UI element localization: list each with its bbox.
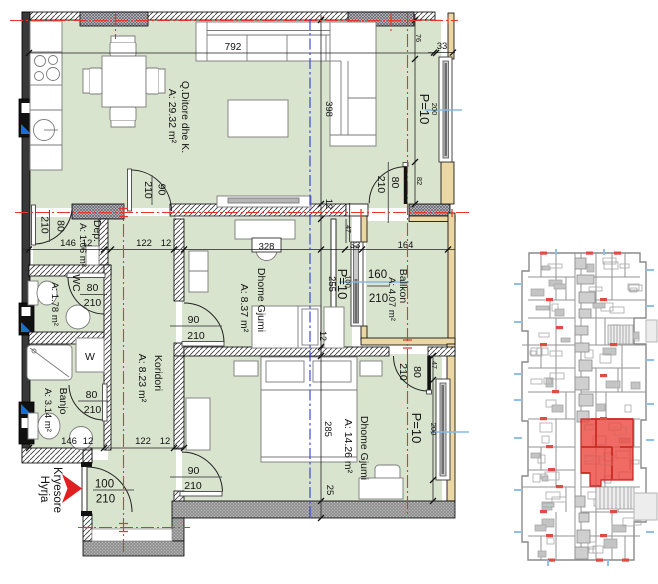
svg-text:A: 4.07 m²: A: 4.07 m² bbox=[386, 277, 397, 321]
svg-text:76: 76 bbox=[414, 34, 423, 42]
svg-text:80: 80 bbox=[411, 366, 423, 378]
svg-text:210: 210 bbox=[84, 297, 102, 309]
svg-text:A: 29.32 m²: A: 29.32 m² bbox=[166, 89, 178, 144]
svg-text:33: 33 bbox=[350, 240, 361, 251]
svg-text:90: 90 bbox=[156, 184, 168, 196]
svg-text:Q.Ditore dhe K.: Q.Ditore dhe K. bbox=[179, 81, 191, 153]
svg-text:146: 146 bbox=[61, 436, 77, 447]
svg-text:210: 210 bbox=[142, 181, 154, 199]
svg-text:146: 146 bbox=[60, 238, 76, 249]
svg-text:82: 82 bbox=[415, 177, 424, 185]
svg-text:33: 33 bbox=[437, 41, 448, 52]
svg-text:285: 285 bbox=[322, 421, 333, 437]
svg-text:210: 210 bbox=[184, 480, 202, 492]
svg-text:792: 792 bbox=[225, 42, 242, 53]
svg-text:47: 47 bbox=[344, 225, 351, 233]
svg-text:Dep.: Dep. bbox=[91, 220, 103, 242]
svg-text:WC: WC bbox=[70, 274, 82, 292]
svg-text:12: 12 bbox=[161, 238, 172, 249]
svg-text:90: 90 bbox=[188, 465, 200, 477]
svg-text:A: 8.23 m²: A: 8.23 m² bbox=[136, 354, 148, 403]
svg-text:Dhome Gjumi: Dhome Gjumi bbox=[255, 268, 267, 332]
svg-text:12: 12 bbox=[323, 199, 334, 210]
svg-text:A: 1.78 m²: A: 1.78 m² bbox=[49, 282, 60, 326]
svg-text:P=10: P=10 bbox=[409, 413, 424, 444]
svg-text:Koridori: Koridori bbox=[152, 355, 164, 391]
svg-text:12: 12 bbox=[318, 331, 328, 341]
svg-text:A: 8.37 m²: A: 8.37 m² bbox=[238, 284, 250, 333]
svg-text:P=10: P=10 bbox=[417, 94, 432, 125]
svg-text:122: 122 bbox=[135, 436, 151, 447]
svg-text:200: 200 bbox=[429, 423, 438, 436]
svg-text:90: 90 bbox=[188, 314, 200, 326]
svg-text:80: 80 bbox=[87, 282, 99, 294]
svg-text:210: 210 bbox=[187, 330, 205, 342]
svg-text:80: 80 bbox=[389, 177, 401, 189]
svg-text:164: 164 bbox=[398, 240, 414, 251]
svg-text:210: 210 bbox=[39, 216, 51, 234]
svg-text:12: 12 bbox=[160, 436, 171, 447]
svg-text:Banjo: Banjo bbox=[57, 388, 69, 415]
svg-text:25: 25 bbox=[324, 485, 335, 496]
svg-text:122: 122 bbox=[136, 238, 152, 249]
svg-text:80: 80 bbox=[55, 220, 67, 232]
svg-text:210: 210 bbox=[369, 293, 388, 305]
svg-text:160: 160 bbox=[368, 269, 387, 281]
svg-text:210: 210 bbox=[96, 494, 115, 506]
svg-text:80: 80 bbox=[86, 389, 98, 401]
svg-text:47: 47 bbox=[430, 361, 437, 369]
svg-text:210: 210 bbox=[375, 176, 387, 194]
svg-text:Kryesore: Kryesore bbox=[51, 467, 63, 513]
svg-text:Dhome Gjumi: Dhome Gjumi bbox=[358, 416, 370, 480]
svg-text:12: 12 bbox=[83, 436, 94, 447]
svg-text:100: 100 bbox=[95, 479, 114, 491]
svg-text:W: W bbox=[85, 351, 95, 363]
svg-text:328: 328 bbox=[259, 242, 275, 253]
svg-text:A: 3.14 m²: A: 3.14 m² bbox=[42, 388, 53, 432]
svg-text:A: 1.06 m²: A: 1.06 m² bbox=[77, 223, 88, 267]
svg-text:P=10: P=10 bbox=[335, 269, 350, 300]
svg-text:210: 210 bbox=[84, 404, 102, 416]
svg-text:Hyrja: Hyrja bbox=[38, 476, 50, 503]
svg-text:A: 14.26 m²: A: 14.26 m² bbox=[342, 419, 354, 474]
svg-text:398: 398 bbox=[323, 101, 334, 117]
